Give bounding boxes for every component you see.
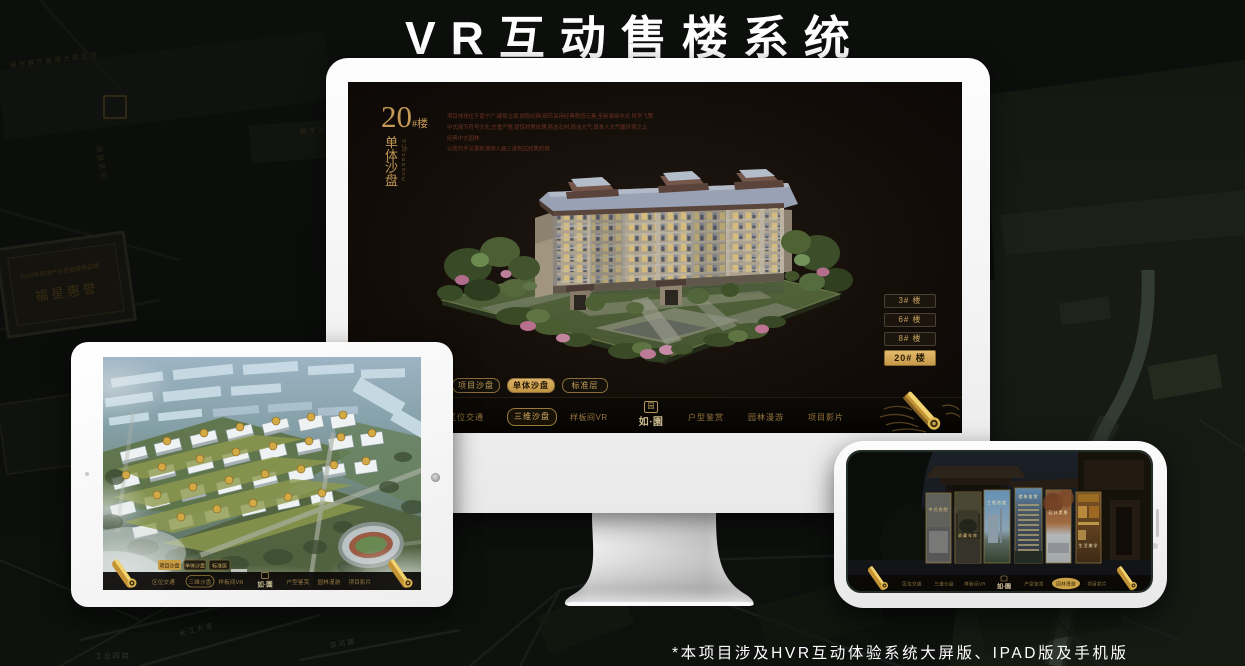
- svg-text:项目影片: 项目影片: [1087, 580, 1107, 587]
- svg-text:项目影片: 项目影片: [349, 578, 372, 586]
- svg-text:标准层: 标准层: [212, 562, 227, 569]
- svg-text:三维沙盘: 三维沙盘: [934, 580, 954, 587]
- svg-text:户型鉴赏: 户型鉴赏: [287, 578, 310, 586]
- svg-text:项目沙盘: 项目沙盘: [159, 562, 179, 569]
- svg-text:区位交通: 区位交通: [902, 580, 922, 587]
- svg-text:生活美学: 生活美学: [1079, 542, 1099, 548]
- svg-text:单体沙盘: 单体沙盘: [185, 562, 205, 569]
- svg-text:工程进度: 工程进度: [987, 499, 1007, 505]
- svg-text:如·園: 如·園: [997, 583, 1011, 591]
- svg-text:园林漫游: 园林漫游: [318, 578, 341, 586]
- svg-text:样板间VR: 样板间VR: [218, 578, 243, 586]
- svg-text:户型鉴赏: 户型鉴赏: [1024, 580, 1044, 587]
- svg-text:收藏车库: 收藏车库: [958, 532, 978, 538]
- svg-text:工 业 四 路: 工 业 四 路: [95, 651, 129, 660]
- svg-text:中式合院: 中式合院: [929, 506, 949, 512]
- svg-text:三维沙盘: 三维沙盘: [189, 578, 212, 586]
- svg-text:样板间VR: 样板间VR: [964, 580, 986, 587]
- svg-text:区位交通: 区位交通: [152, 578, 175, 586]
- svg-text:如·園: 如·園: [257, 580, 273, 589]
- svg-text:楼栋鉴赏: 楼栋鉴赏: [1019, 493, 1039, 499]
- svg-text:园林実景: 园林実景: [1049, 509, 1069, 515]
- svg-text:园林漫游: 园林漫游: [1056, 581, 1076, 588]
